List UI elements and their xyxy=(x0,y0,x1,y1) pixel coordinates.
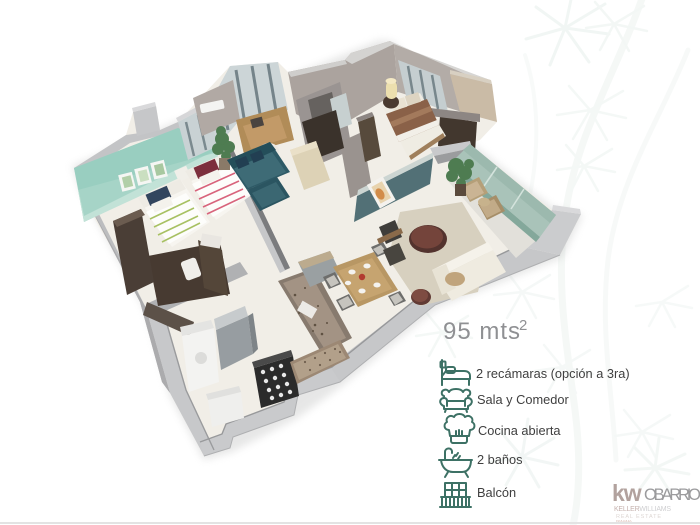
svg-text:Balcón: Balcón xyxy=(477,485,516,500)
svg-text:KELLERWILLIAMS: KELLERWILLIAMS xyxy=(614,506,671,513)
svg-text:2 baños: 2 baños xyxy=(477,452,523,467)
svg-text:95 mts: 95 mts xyxy=(443,318,521,345)
svg-text:Cocina abierta: Cocina abierta xyxy=(478,423,561,438)
svg-text:2: 2 xyxy=(519,317,527,334)
svg-text:OBARRIO: OBARRIO xyxy=(644,486,700,504)
svg-text:2 recámaras (opción a 3ra): 2 recámaras (opción a 3ra) xyxy=(476,366,630,381)
svg-text:Sala y Comedor: Sala y Comedor xyxy=(477,392,569,407)
svg-text:kw: kw xyxy=(612,480,642,506)
